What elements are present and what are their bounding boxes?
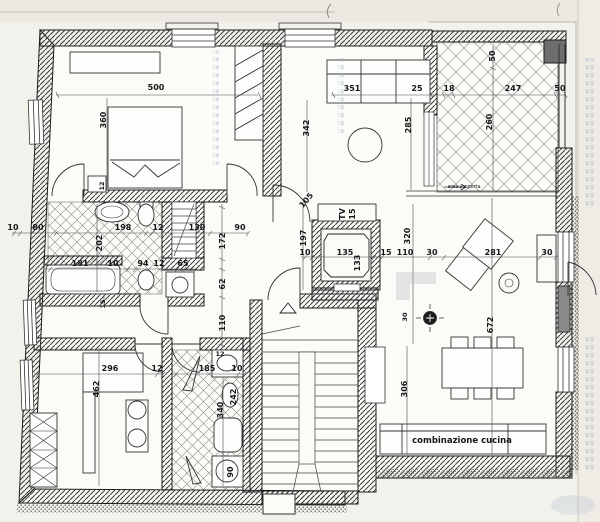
dim-b1-198: 198 <box>115 223 132 232</box>
dim-62: 62 <box>218 278 227 289</box>
window-top-2 <box>285 29 335 47</box>
dim-c-15: 15 <box>380 248 392 257</box>
stair-shaft-wall-left <box>250 300 262 492</box>
dim-terrace-50b: 50 <box>554 84 566 93</box>
chair <box>451 337 468 348</box>
dim-b1-10b: 10 <box>107 259 119 268</box>
dim-306: 306 <box>400 380 409 397</box>
dim-b1-130: 130 <box>189 223 206 232</box>
terrace-floor <box>437 42 558 192</box>
elevator-door <box>334 284 360 291</box>
dim-b1-12b: 12 <box>153 259 164 268</box>
window-top-1 <box>172 29 215 47</box>
dim-elevator-135: 135 <box>337 248 354 257</box>
bathtub <box>46 265 120 294</box>
bath1-wall-bottom-a <box>40 294 140 306</box>
chair <box>497 337 514 348</box>
window-right-1 <box>558 232 574 282</box>
dim-172: 172 <box>218 233 227 250</box>
tv-depth-label: 15 <box>348 208 357 220</box>
window-left-3 <box>20 360 34 410</box>
dim-studio-12: 12 <box>151 364 162 373</box>
double-bed <box>108 107 182 188</box>
bidet2 <box>214 418 242 452</box>
bath2-wall-right <box>243 338 250 492</box>
dim-c-110: 110 <box>397 248 414 257</box>
dim-b1-80: 80 <box>32 223 44 232</box>
dim-c-281: 281 <box>485 248 502 257</box>
dim-b2-185: 185 <box>199 364 216 373</box>
dim-bedroom-depth: 360 <box>99 111 108 128</box>
window-right-2 <box>558 347 574 392</box>
dim-110v: 110 <box>218 314 227 331</box>
dim-shower-90: 90 <box>226 466 235 478</box>
dim-terrace-247: 247 <box>505 84 522 93</box>
dim-b1-65: 65 <box>177 259 189 268</box>
dim-285: 285 <box>404 116 413 133</box>
dim-25: 25 <box>411 84 423 93</box>
chair <box>497 388 514 399</box>
dim-b2-242: 242 <box>229 389 238 406</box>
terrace-label: area scoperta <box>447 184 480 190</box>
dining-table <box>442 348 523 388</box>
kitchen-label: combinazione cucina <box>412 436 512 446</box>
dim-b2-12: 12 <box>215 350 224 358</box>
dim-elevator-133: 133 <box>353 255 362 272</box>
window-left-2 <box>23 300 37 345</box>
dim-studio-462: 462 <box>92 381 101 398</box>
bidet <box>138 270 154 290</box>
dim-b2-10: 10 <box>231 364 243 373</box>
dim-320: 320 <box>403 227 412 244</box>
dim-terrace-260: 260 <box>485 113 494 130</box>
terrace-corner-pillar <box>544 40 566 63</box>
dim-bedroom-width: 500 <box>148 83 165 92</box>
sink <box>95 202 129 222</box>
dim-342: 342 <box>302 120 311 137</box>
dim-672: 672 <box>486 317 495 334</box>
dim-c-30b: 30 <box>541 248 553 257</box>
tv-label: TV <box>338 207 347 219</box>
dim-b1-181: 181 <box>72 259 89 268</box>
window-left-1 <box>28 100 44 144</box>
kitchen-niche <box>365 347 385 403</box>
tv-cabinet <box>318 204 376 221</box>
studio-wall-top-a <box>34 338 135 350</box>
dim-b1-12: 12 <box>152 223 163 232</box>
dim-c-10: 10 <box>299 248 311 257</box>
chair <box>474 337 491 348</box>
bedroom-wall-right <box>263 44 281 196</box>
outer-wall-top <box>40 30 432 46</box>
dim-b2-340: 340 <box>216 401 225 418</box>
desk-table <box>126 400 148 452</box>
chair <box>474 388 491 399</box>
chair <box>451 388 468 399</box>
desk-strip <box>83 392 95 473</box>
dresser <box>70 52 160 73</box>
dim-b1-202: 202 <box>95 235 104 252</box>
dim-15v: 15 <box>99 299 107 309</box>
dim-197: 197 <box>299 230 308 247</box>
scanned-floor-plan: 500 360 12 351 25 18 247 50 50 260 285 3… <box>0 0 600 522</box>
floor-plan-drawing: 500 360 12 351 25 18 247 50 50 260 285 3… <box>0 0 600 522</box>
dim-terrace-50: 50 <box>488 50 497 62</box>
dim-sofa-351: 351 <box>344 84 361 93</box>
dim-c-30: 30 <box>426 248 438 257</box>
dim-studio-296: 296 <box>102 364 119 373</box>
dim-18: 18 <box>443 84 455 93</box>
studio-bath2-divider <box>162 338 172 490</box>
dim-bedroom-12: 12 <box>98 181 106 190</box>
entrance-step <box>263 494 295 514</box>
outer-wall-right-upper <box>556 148 572 232</box>
dim-b1-94: 94 <box>137 259 149 268</box>
dim-b1-90: 90 <box>234 223 246 232</box>
dim-30v: 30 <box>401 312 409 322</box>
dim-b1-10: 10 <box>7 223 19 232</box>
